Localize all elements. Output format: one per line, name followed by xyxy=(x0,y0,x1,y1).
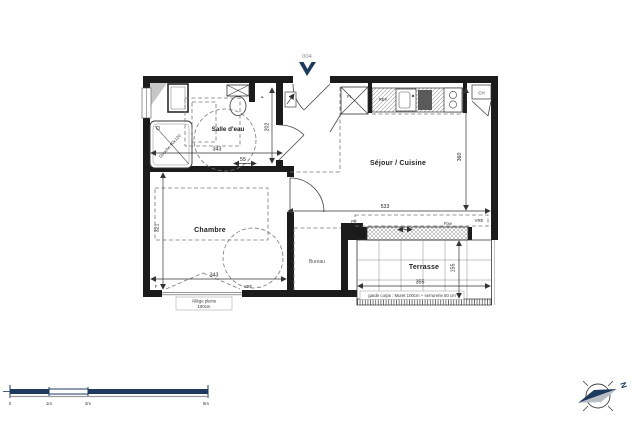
compass-north-label: N xyxy=(618,381,628,389)
allege-note-line1: Allège pleine xyxy=(192,299,217,304)
floor-plan-page: 004 xyxy=(0,0,640,422)
chambre-window-f-label: F xyxy=(155,284,158,289)
dim-terrasse-width: 355 xyxy=(416,280,425,286)
scale-label-2m: 2m xyxy=(85,401,91,406)
terrace-glazing xyxy=(367,227,468,240)
dim-terrasse-depth: 155 xyxy=(451,264,457,273)
allege-note: Allège pleine 100cm xyxy=(176,297,232,310)
electrical-panel xyxy=(285,92,296,107)
dim-salle-deau-nook: 55 xyxy=(240,157,246,163)
room-label-sejour: Séjour / Cuisine xyxy=(370,160,426,167)
entry-window-label: F xyxy=(260,95,265,98)
hob xyxy=(418,90,432,110)
room-label-salle-deau: Salle d'eau xyxy=(212,126,245,133)
fridge-label: REF xyxy=(379,97,388,102)
room-label-terrasse: Terrasse xyxy=(409,264,439,271)
bathroom-door-leaf xyxy=(279,135,304,160)
toilet xyxy=(227,85,249,116)
dim-entry-depth: 202 xyxy=(265,123,271,132)
corner-shading xyxy=(150,83,167,107)
terrace-pf-label: PF xyxy=(351,219,357,224)
entrance-marker: 004 xyxy=(299,54,316,76)
room-label-bureau: Bureau xyxy=(309,259,325,265)
entrance-door-leaf xyxy=(304,84,330,110)
compass: N xyxy=(578,381,629,411)
kitchen-sink xyxy=(396,89,416,111)
garde-corps-note: garde corps : Muret 100cm + serrurerie 5… xyxy=(360,291,464,300)
chambre-door-arc xyxy=(290,178,324,212)
garde-corps-text: garde corps : Muret 100cm + serrurerie 5… xyxy=(368,293,456,298)
terrace-opening-dashed xyxy=(355,215,488,226)
floor-plan-svg: 004 xyxy=(0,0,640,422)
allege-note-line2: 100cm xyxy=(198,304,211,309)
dim-chambre-width: 343 xyxy=(210,273,219,279)
scale-label-0: 0 xyxy=(9,401,12,406)
bathroom-window xyxy=(142,88,151,118)
dim-salle-deau-width: 343 xyxy=(213,147,222,153)
terrace-vre-label: VRE xyxy=(475,218,484,223)
dim-sejour-height: 360 xyxy=(457,153,463,162)
chambre-window: F VRE xyxy=(155,273,253,297)
water-heater-label: CH xyxy=(478,91,484,96)
terrasse-area: PF Fixe VRE garde corps : Muret 100cm + … xyxy=(351,215,494,305)
room-label-chambre: Chambre xyxy=(194,227,226,234)
unit-number-label: 004 xyxy=(302,54,312,60)
dim-chambre-height: 321 xyxy=(155,224,161,233)
water-heater: CH xyxy=(472,85,491,116)
cooktop xyxy=(444,88,462,112)
scale-label-5m: 5m xyxy=(203,401,209,406)
dim-sejour-width: 533 xyxy=(381,204,390,210)
scale-label-1m: 1m xyxy=(46,401,52,406)
scale-bar: 0 1m 2m 5m xyxy=(3,385,209,406)
shower: Douche 90x120 xyxy=(150,121,192,168)
closet-label: PL xyxy=(347,94,353,99)
terrace-railing xyxy=(357,299,492,305)
bathroom-door-arc xyxy=(279,125,304,135)
terrace-fixe-label: Fixe xyxy=(444,221,453,226)
chambre-window-vre-label: VRE xyxy=(244,284,253,289)
